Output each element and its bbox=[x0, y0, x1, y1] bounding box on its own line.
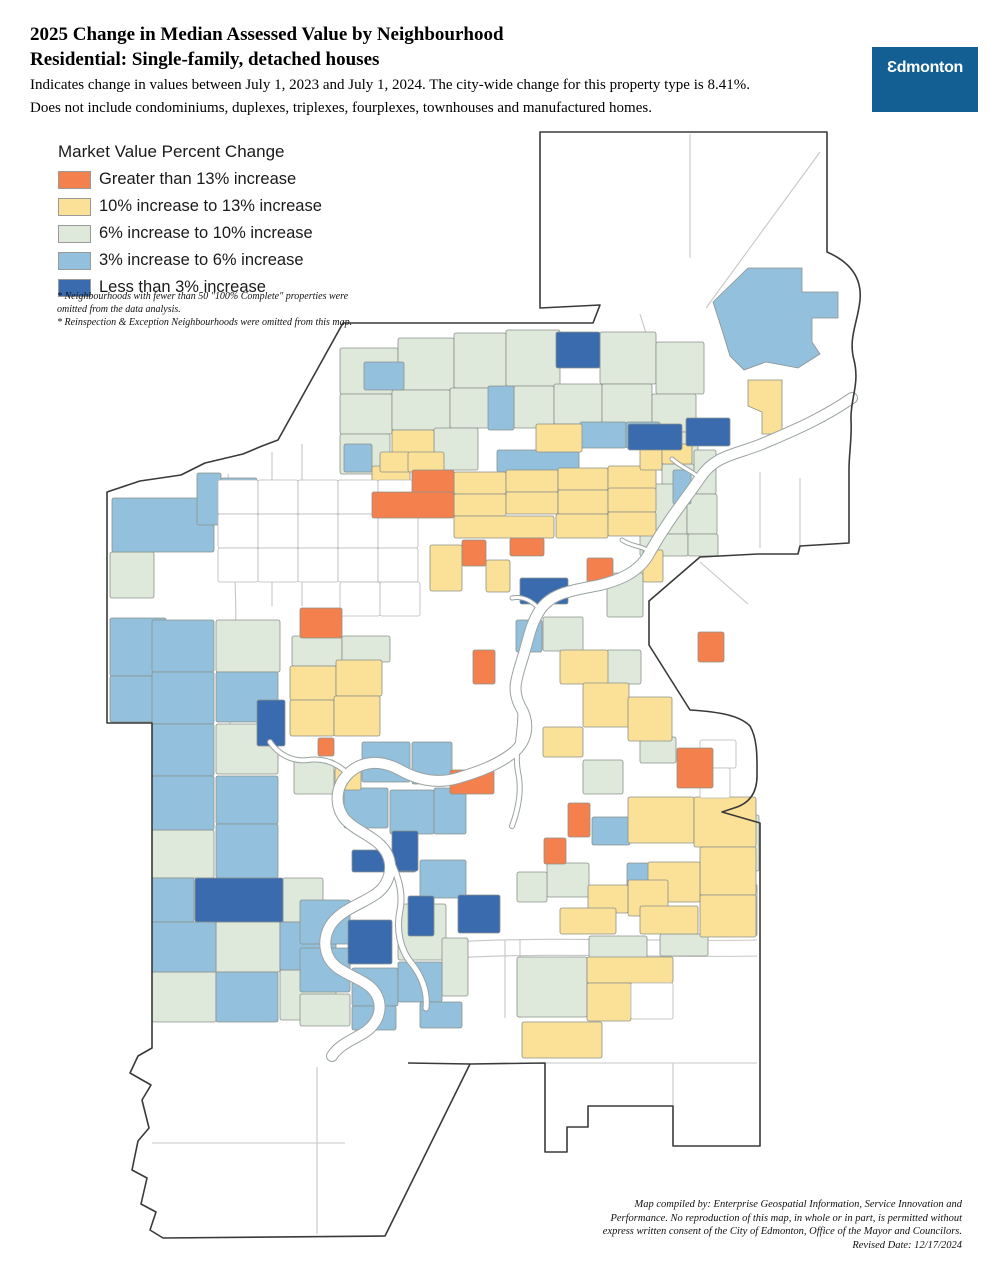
neighbourhood-region bbox=[454, 494, 506, 516]
neighbourhood-region bbox=[336, 660, 382, 696]
neighbourhood-region bbox=[660, 934, 708, 956]
neighbourhood-region bbox=[607, 650, 641, 684]
neighbourhood-region bbox=[380, 582, 420, 616]
legend-label: 10% increase to 13% increase bbox=[99, 197, 322, 216]
neighbourhood-region bbox=[392, 430, 434, 454]
city-boundary-segment bbox=[408, 1063, 470, 1064]
neighbourhood-region bbox=[536, 424, 582, 452]
legend-swatch bbox=[58, 171, 91, 189]
neighbourhood-region bbox=[408, 896, 434, 936]
neighbourhood-region bbox=[152, 878, 194, 922]
legend-label: 3% increase to 6% increase bbox=[99, 251, 304, 270]
neighbourhood-region bbox=[700, 847, 756, 895]
neighbourhood-region bbox=[218, 480, 258, 514]
neighbourhood-region bbox=[517, 957, 587, 1017]
neighbourhood-region bbox=[600, 332, 656, 384]
neighbourhood-region bbox=[558, 468, 608, 490]
neighbourhood-region bbox=[290, 700, 334, 736]
footnotes: * Neighbourhoods with fewer than 50 "100… bbox=[57, 290, 357, 329]
neighbourhood-region bbox=[300, 994, 350, 1026]
neighbourhood-region bbox=[348, 920, 392, 964]
neighbourhood-region bbox=[152, 972, 216, 1022]
neighbourhood-region bbox=[558, 490, 608, 514]
neighbourhood-region bbox=[506, 470, 558, 492]
credits-line: Performance. No reproduction of this map… bbox=[542, 1212, 962, 1226]
neighbourhood-region bbox=[514, 386, 554, 428]
neighbourhood-region bbox=[298, 514, 338, 548]
neighbourhood-region bbox=[216, 922, 280, 972]
neighbourhood-region bbox=[640, 906, 698, 934]
neighbourhood-region bbox=[392, 390, 450, 430]
neighbourhood-region bbox=[656, 342, 704, 394]
neighbourhood-region bbox=[290, 666, 336, 700]
description-line: Indicates change in values between July … bbox=[30, 75, 850, 95]
header: 2025 Change in Median Assessed Value by … bbox=[30, 22, 850, 118]
neighbourhood-region bbox=[380, 452, 410, 472]
neighbourhood-region bbox=[454, 472, 506, 494]
neighbourhood-region bbox=[543, 727, 583, 757]
neighbourhood-region bbox=[631, 983, 673, 1019]
neighbourhood-region bbox=[517, 872, 547, 902]
neighbourhood-region bbox=[398, 338, 454, 390]
legend-item-g: 6% increase to 10% increase bbox=[58, 224, 368, 243]
neighbourhood-region bbox=[197, 473, 221, 525]
neighbourhood-region bbox=[568, 803, 590, 837]
neighbourhood-region bbox=[152, 830, 214, 878]
map-page: 2025 Change in Median Assessed Value by … bbox=[0, 0, 990, 1280]
neighbourhood-region bbox=[583, 683, 629, 727]
neighbourhood-region bbox=[592, 817, 630, 845]
road-line bbox=[700, 562, 748, 604]
neighbourhood-region bbox=[698, 632, 724, 662]
credits-block: Map compiled by: Enterprise Geospatial I… bbox=[542, 1198, 962, 1252]
neighbourhood-region bbox=[340, 394, 392, 434]
neighbourhood-region bbox=[700, 895, 756, 937]
footnote: * Reinspection & Exception Neighbourhood… bbox=[57, 316, 357, 329]
legend-label: 6% increase to 10% increase bbox=[99, 224, 313, 243]
legend-title: Market Value Percent Change bbox=[58, 142, 368, 162]
footnote: * Neighbourhoods with fewer than 50 "100… bbox=[57, 290, 357, 316]
neighbourhood-region bbox=[589, 936, 647, 958]
neighbourhood-region bbox=[294, 760, 334, 794]
neighbourhood-region bbox=[458, 895, 500, 933]
neighbourhood-region bbox=[338, 514, 378, 548]
neighbourhood-region bbox=[378, 548, 418, 582]
neighbourhood-region bbox=[390, 790, 434, 834]
neighbourhood-region bbox=[152, 724, 214, 776]
neighbourhood-region bbox=[473, 650, 495, 684]
neighbourhood-region bbox=[258, 548, 298, 582]
neighbourhood-region bbox=[556, 514, 608, 538]
neighbourhood-region bbox=[300, 608, 342, 638]
neighbourhood-region bbox=[372, 492, 454, 518]
neighbourhood-region bbox=[628, 697, 672, 741]
legend-item-o: Greater than 13% increase bbox=[58, 170, 368, 189]
edmonton-logo: Ɛdmonton bbox=[872, 47, 978, 112]
neighbourhood-region bbox=[628, 797, 694, 843]
neighbourhood-region bbox=[258, 480, 298, 514]
neighbourhood-region bbox=[677, 748, 713, 788]
neighbourhood-region bbox=[420, 860, 466, 898]
legend-rows: Greater than 13% increase10% increase to… bbox=[58, 170, 368, 297]
neighbourhood-region bbox=[152, 776, 214, 830]
neighbourhood-region bbox=[218, 548, 258, 582]
legend-item-y: 10% increase to 13% increase bbox=[58, 197, 368, 216]
neighbourhood-region bbox=[344, 444, 372, 472]
neighbourhood-region bbox=[640, 448, 662, 470]
neighbourhood-region bbox=[560, 650, 608, 684]
neighbourhood-region bbox=[152, 620, 214, 672]
neighbourhood-region bbox=[408, 452, 444, 472]
neighbourhood-region bbox=[152, 922, 216, 972]
neighbourhood-region bbox=[454, 516, 554, 538]
neighbourhood-region bbox=[488, 386, 514, 430]
legend-swatch bbox=[58, 252, 91, 270]
neighbourhood-region bbox=[434, 788, 466, 834]
legend-swatch bbox=[58, 225, 91, 243]
credits-line: Revised Date: 12/17/2024 bbox=[542, 1239, 962, 1253]
neighbourhood-region bbox=[462, 540, 486, 566]
neighbourhood-region bbox=[608, 488, 656, 512]
neighbourhood-region bbox=[587, 983, 631, 1021]
neighbourhood-region bbox=[298, 548, 338, 582]
neighbourhood-region bbox=[454, 333, 506, 388]
neighbourhood-region bbox=[686, 418, 730, 446]
neighbourhood-region bbox=[298, 480, 338, 514]
neighbourhood-region bbox=[547, 863, 589, 897]
neighbourhood-region bbox=[587, 957, 673, 983]
neighbourhood-region bbox=[544, 838, 566, 864]
neighbourhood-region bbox=[292, 636, 342, 666]
neighbourhood-region bbox=[560, 908, 616, 934]
legend-item-b: 3% increase to 6% increase bbox=[58, 251, 368, 270]
credits-line: Map compiled by: Enterprise Geospatial I… bbox=[542, 1198, 962, 1212]
neighbourhood-region bbox=[628, 424, 682, 450]
neighbourhood-region bbox=[110, 552, 154, 598]
neighbourhood-region bbox=[430, 545, 462, 591]
neighbourhood-region bbox=[450, 388, 490, 428]
neighbourhood-region bbox=[583, 760, 623, 794]
neighbourhood-region bbox=[318, 738, 334, 756]
neighbourhood-region bbox=[442, 938, 468, 996]
neighbourhood-region bbox=[195, 878, 283, 922]
neighbourhood-region bbox=[258, 514, 298, 548]
neighbourhood-region bbox=[378, 514, 418, 548]
neighbourhood-region bbox=[506, 492, 558, 514]
neighbourhood-region bbox=[543, 617, 583, 651]
credits-line: express written consent of the City of E… bbox=[542, 1225, 962, 1239]
neighbourhood-region bbox=[216, 776, 278, 824]
neighbourhood-region bbox=[342, 636, 390, 662]
neighbourhood-region bbox=[218, 514, 258, 548]
neighbourhood-region bbox=[152, 672, 214, 724]
legend-label: Greater than 13% increase bbox=[99, 170, 296, 189]
neighbourhood-region bbox=[510, 538, 544, 556]
map-legend: Market Value Percent Change Greater than… bbox=[58, 142, 368, 305]
neighbourhood-region bbox=[216, 972, 278, 1022]
edmonton-logo-text: Ɛdmonton bbox=[887, 59, 963, 112]
neighbourhood-region bbox=[506, 330, 560, 386]
description-line: Does not include condominiums, duplexes,… bbox=[30, 98, 850, 118]
neighbourhood-region bbox=[486, 560, 510, 592]
neighbourhood-region bbox=[364, 362, 404, 390]
neighbourhood-region bbox=[688, 534, 718, 556]
neighbourhood-region bbox=[554, 384, 602, 424]
neighbourhood-region bbox=[608, 512, 656, 536]
page-title: 2025 Change in Median Assessed Value by … bbox=[30, 22, 850, 47]
neighbourhood-region bbox=[334, 696, 380, 736]
neighbourhood-region bbox=[556, 332, 600, 368]
neighbourhood-region bbox=[340, 582, 380, 616]
page-subtitle: Residential: Single-family, detached hou… bbox=[30, 47, 850, 72]
neighbourhood-region bbox=[216, 620, 280, 672]
neighbourhood-region bbox=[694, 797, 756, 847]
neighbourhood-region bbox=[580, 422, 626, 448]
neighbourhood-region bbox=[257, 700, 285, 746]
neighbourhood-region bbox=[602, 384, 652, 424]
neighbourhood-region bbox=[522, 1022, 602, 1058]
legend-swatch bbox=[58, 198, 91, 216]
neighbourhood-region bbox=[338, 548, 378, 582]
neighbourhood-region bbox=[216, 824, 278, 878]
